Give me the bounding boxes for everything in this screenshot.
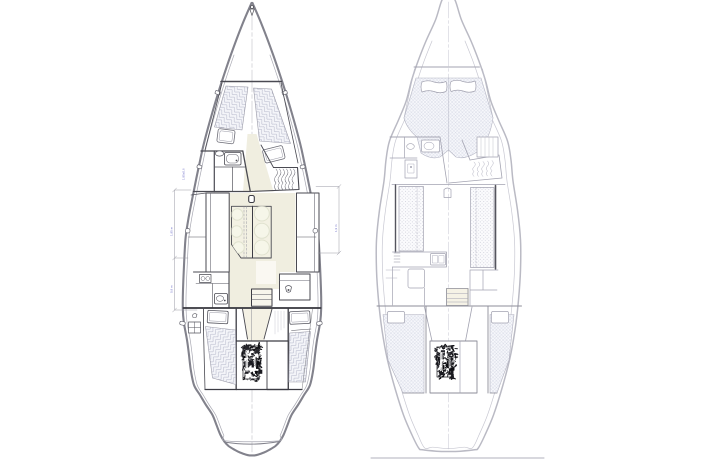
svg-text:0,9 m: 0,9 m xyxy=(170,285,174,293)
svg-text:1,85x0,6: 1,85x0,6 xyxy=(182,168,186,180)
svg-text:1,95 m: 1,95 m xyxy=(170,226,174,236)
svg-text:1,9 m: 1,9 m xyxy=(334,224,338,232)
